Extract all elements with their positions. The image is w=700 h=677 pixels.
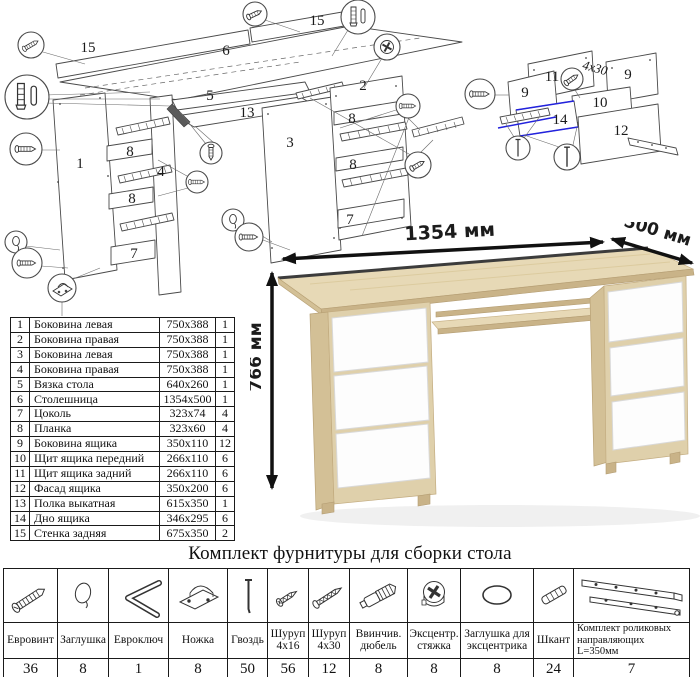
table-row: 9Боковина ящика350x11012 [11, 437, 235, 452]
table-row: 11Щит ящика задний266x1106 [11, 466, 235, 481]
table-row: 5Вязка стола640x2601 [11, 377, 235, 392]
cap-icon [60, 573, 106, 619]
part-qty: 6 [216, 511, 235, 526]
drawer-slides-icon [576, 573, 688, 619]
hardware-icon-cell [574, 569, 690, 623]
keyboard-tray [432, 297, 609, 334]
hardware-qty: 8 [58, 658, 109, 677]
hardware-table: Евровинт Заглушка Евроключ Ножка Гвоздь … [3, 568, 690, 677]
part-name: Щит ящика передний [30, 452, 160, 467]
part-num: 7 [11, 407, 30, 422]
height-dimension-label: 766 мм [250, 322, 266, 391]
hardware-qty: 8 [408, 658, 461, 677]
desk-render: 1354 мм 500 мм 766 мм [250, 222, 700, 540]
part-label: 3 [286, 135, 294, 151]
part-size: 750x388 [160, 332, 216, 347]
part-label: 9 [624, 67, 632, 83]
table-row: 2Боковина правая750x3881 [11, 332, 235, 347]
part-label: 8 [348, 111, 356, 127]
confirmat-screw-icon [6, 573, 56, 619]
nail-icon [230, 573, 266, 619]
cam-lock-icon [381, 41, 394, 54]
hardware-qty: 24 [534, 658, 574, 677]
part-size: 675x350 [160, 526, 216, 541]
part-num: 13 [11, 496, 30, 511]
drawer-exploded-view: 11 9 9 10 14 12 4x30 [465, 51, 678, 170]
part-label: 8 [349, 157, 357, 173]
part-size: 350x110 [160, 437, 216, 452]
part-num: 4 [11, 362, 30, 377]
hardware-icon-cell [461, 569, 534, 623]
part-name: Боковина ящика [30, 437, 160, 452]
part-size: 750x388 [160, 318, 216, 333]
hardware-qty: 12 [309, 658, 350, 677]
part-name: Цоколь [30, 407, 160, 422]
desk-foot [322, 502, 334, 514]
part-qty: 6 [216, 452, 235, 467]
hardware-qty: 8 [350, 658, 408, 677]
drawer-front [612, 392, 685, 450]
hardware-qty: 7 [574, 658, 690, 677]
dimension-height: 766 мм [250, 273, 272, 488]
part-label: 1 [76, 156, 84, 172]
part-size: 323x74 [160, 407, 216, 422]
callout-screw-4x30 [561, 68, 583, 90]
part-name: Полка выкатная [30, 496, 160, 511]
part-size: 750x388 [160, 347, 216, 362]
part-qty: 4 [216, 407, 235, 422]
hardware-name: Шкант [534, 623, 574, 659]
hardware-name: Шуруп 4x30 [309, 623, 350, 659]
hardware-name: Евровинт [4, 623, 58, 659]
drawer-front [336, 424, 430, 488]
hardware-icon-cell [408, 569, 461, 623]
part-num: 1 [11, 318, 30, 333]
hardware-name: Комплект роликовых направляющих L=350мм [574, 623, 690, 659]
drawer-front [334, 366, 429, 430]
part-label: 15 [310, 13, 325, 29]
part-size: 750x388 [160, 362, 216, 377]
hardware-name: Заглушка [58, 623, 109, 659]
hardware-qty-row: 36 8 1 8 50 56 12 8 8 8 24 7 [4, 658, 690, 677]
parts-table: 1Боковина левая750x3881 2Боковина правая… [10, 317, 235, 541]
hardware-name: Эксцентр. стяжка [408, 623, 461, 659]
part-label: 2 [359, 78, 367, 94]
table-row: 10Щит ящика передний266x1106 [11, 452, 235, 467]
part-label: 13 [240, 105, 255, 121]
assembly-instruction-sheet: 15 6 15 5 13 1 8 4 8 7 3 2 8 8 7 [0, 0, 700, 677]
hardware-kit-title: Комплект фурнитуры для сборки стола [0, 543, 700, 565]
left-side-panel [53, 93, 117, 280]
part-qty: 2 [216, 526, 235, 541]
part-qty: 4 [216, 422, 235, 437]
part-name: Столешница [30, 392, 160, 407]
screw-in-dowel-icon [352, 573, 406, 619]
cam-lock-icon [410, 573, 458, 619]
callout-nail [506, 136, 530, 160]
hardware-icon-cell [268, 569, 309, 623]
hardware-icons-row [4, 569, 690, 623]
hardware-qty: 56 [268, 658, 309, 677]
part-num: 14 [11, 511, 30, 526]
hardware-name: Евроключ [109, 623, 169, 659]
table-row: 1Боковина левая750x3881 [11, 318, 235, 333]
callout-nail [554, 144, 580, 170]
width-dimension-label: 1354 мм [404, 222, 496, 245]
cam-cap-icon [467, 573, 527, 619]
table-row: 6Столешница1354x5001 [11, 392, 235, 407]
part-size: 350x200 [160, 481, 216, 496]
dimension-width: 1354 мм [283, 222, 603, 259]
part-name: Боковина левая [30, 347, 160, 362]
callout-confirmat-screw [186, 171, 208, 193]
part-num: 11 [11, 466, 30, 481]
part-qty: 1 [216, 332, 235, 347]
hardware-name: Гвоздь [228, 623, 268, 659]
part-qty: 6 [216, 466, 235, 481]
desk-foot [670, 452, 680, 464]
foot-icon [171, 573, 225, 619]
part-label: 12 [614, 123, 629, 139]
callout-screw-vertical [200, 142, 222, 164]
table-row: 7Цоколь323x744 [11, 407, 235, 422]
part-num: 2 [11, 332, 30, 347]
hardware-name: Заглушка для эксцентрика [461, 623, 534, 659]
table-row: 14Дно ящика346x2956 [11, 511, 235, 526]
part-qty: 1 [216, 392, 235, 407]
drawer-front [332, 308, 428, 372]
screw-4x30-icon [310, 573, 348, 619]
table-row: 8Планка323x604 [11, 422, 235, 437]
part-label: 11 [545, 69, 559, 85]
part-size: 640x260 [160, 377, 216, 392]
part-name: Дно ящика [30, 511, 160, 526]
part-name: Боковина правая [30, 362, 160, 377]
callout-screw [405, 152, 431, 178]
part-qty: 6 [216, 481, 235, 496]
callout-confirmat-screw [10, 133, 42, 165]
part-qty: 1 [216, 318, 235, 333]
part-num: 12 [11, 481, 30, 496]
hardware-qty: 8 [461, 658, 534, 677]
desk-foot [418, 494, 430, 506]
part-qty: 1 [216, 362, 235, 377]
hardware-icon-cell [4, 569, 58, 623]
part-name: Фасад ящика [30, 481, 160, 496]
hardware-qty: 1 [109, 658, 169, 677]
callout-confirmat-screw [12, 248, 42, 278]
callout-confirmat-screw [396, 94, 420, 118]
part-qty: 12 [216, 437, 235, 452]
wood-dowel-icon [535, 573, 573, 619]
hardware-icon-cell [109, 569, 169, 623]
part-name: Боковина правая [30, 332, 160, 347]
callout-dowel-and-pin [341, 0, 375, 34]
hardware-name: Ввинчив. дюбель [350, 623, 408, 659]
hardware-icon-cell [534, 569, 574, 623]
right-pedestal [590, 276, 688, 474]
hardware-qty: 36 [4, 658, 58, 677]
hardware-icon-cell [350, 569, 408, 623]
hardware-icon-cell [58, 569, 109, 623]
callout-dowel-and-pin [5, 75, 49, 119]
part-label: 14 [553, 112, 569, 128]
callout-confirmat-screw [18, 32, 44, 58]
part-num: 6 [11, 392, 30, 407]
part-num: 9 [11, 437, 30, 452]
part-size: 1354x500 [160, 392, 216, 407]
hardware-qty: 8 [169, 658, 228, 677]
part-qty: 1 [216, 496, 235, 511]
floor-shadow [300, 505, 700, 527]
hardware-icon-cell [228, 569, 268, 623]
hardware-icon-cell [169, 569, 228, 623]
part-size: 346x295 [160, 511, 216, 526]
part-name: Вязка стола [30, 377, 160, 392]
part-name: Боковина левая [30, 318, 160, 333]
part-size: 615x350 [160, 496, 216, 511]
callout-cam-lock [374, 34, 400, 60]
desk-foot [606, 462, 616, 474]
part-qty: 1 [216, 347, 235, 362]
part-label: 8 [128, 191, 136, 207]
part-label: 8 [126, 144, 134, 160]
table-row: 13Полка выкатная615x3501 [11, 496, 235, 511]
part-size: 323x60 [160, 422, 216, 437]
part-num: 10 [11, 452, 30, 467]
table-row: 4Боковина правая750x3881 [11, 362, 235, 377]
part-num: 15 [11, 526, 30, 541]
part-name: Стенка задняя [30, 526, 160, 541]
part-num: 5 [11, 377, 30, 392]
part-qty: 1 [216, 377, 235, 392]
left-pedestal [310, 302, 436, 514]
part-name: Щит ящика задний [30, 466, 160, 481]
hardware-icon-cell [309, 569, 350, 623]
part-label: 4 [157, 164, 165, 180]
part-label: 15 [81, 40, 96, 56]
part-num: 3 [11, 347, 30, 362]
part-label: 10 [593, 95, 608, 111]
table-row: 3Боковина левая750x3881 [11, 347, 235, 362]
part-name: Планка [30, 422, 160, 437]
drawer-front [608, 282, 683, 342]
screw-4x16-icon [269, 573, 307, 619]
callout-confirmat-screw [465, 79, 495, 109]
drawer-front [610, 338, 684, 396]
part-label: 6 [222, 43, 230, 59]
drawer-slide-rail [412, 117, 464, 137]
part-label: 5 [206, 88, 214, 104]
callout-screw [243, 2, 267, 26]
part-size: 266x110 [160, 466, 216, 481]
part-label: 7 [130, 246, 138, 262]
hex-key-icon [111, 573, 167, 619]
hardware-name: Ножка [169, 623, 228, 659]
part-size: 266x110 [160, 452, 216, 467]
hardware-name: Шуруп 4x16 [268, 623, 309, 659]
table-row: 15Стенка задняя675x3502 [11, 526, 235, 541]
hardware-names-row: Евровинт Заглушка Евроключ Ножка Гвоздь … [4, 623, 690, 659]
hardware-qty: 50 [228, 658, 268, 677]
part-num: 8 [11, 422, 30, 437]
part-label: 9 [521, 85, 529, 101]
table-row: 12Фасад ящика350x2006 [11, 481, 235, 496]
callout-foot [48, 274, 76, 302]
